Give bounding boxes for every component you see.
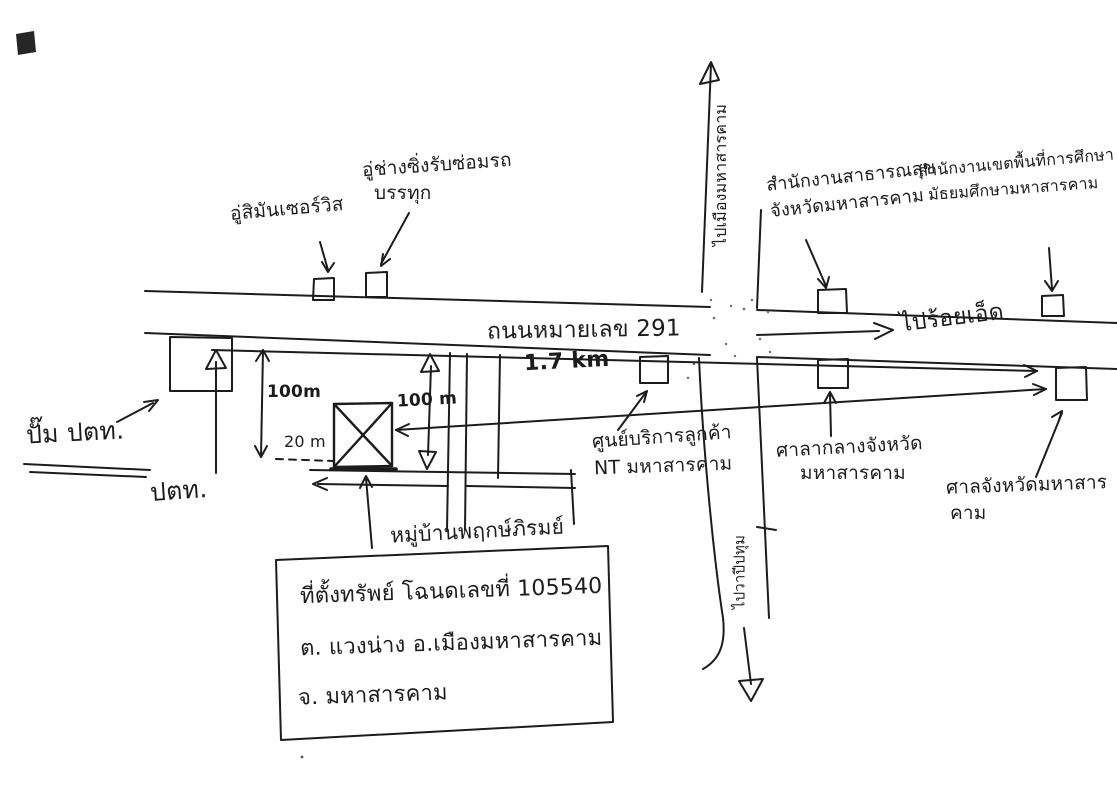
measure-100m-east: 100 m <box>397 390 458 411</box>
provincial-hall-building <box>818 359 848 388</box>
measure-20m: 20 m <box>284 434 326 451</box>
speck <box>301 756 304 759</box>
hand-drawn-location-map: อู่สิมันเซอร์วิส อู่ช่างซิ่งรับซ่อมรถ บร… <box>0 0 1117 800</box>
property-note-line3: จ. มหาสารคาม <box>298 681 449 709</box>
direction-wapi-pathum: ไปวาปีปทุม <box>733 510 753 635</box>
public-health-building <box>818 289 847 313</box>
ptt-station-building <box>170 337 232 473</box>
direction-muang-mahasarakham: ไปเมืองมหาสารคาม <box>713 85 735 265</box>
label-truck-garage-line2: บรรทุก <box>374 184 432 204</box>
measure-100m-west: 100m <box>267 384 321 402</box>
truck-garage-building <box>366 272 387 297</box>
education-office-building <box>1042 295 1064 316</box>
property-marker <box>331 403 396 469</box>
main-road-distance: 1.7 km <box>523 348 609 376</box>
dimension-100m-east <box>419 354 439 469</box>
label-provincial-court-line2: คาม <box>950 504 987 524</box>
map-canvas <box>0 0 1117 800</box>
arrow-right-roiet-icon <box>757 323 893 339</box>
label-ptt-short: ปตท. <box>149 476 208 506</box>
dimension-100m-west <box>255 350 269 457</box>
scan-artifact <box>16 31 36 55</box>
label-provincial-hall-line2: มหาสารคาม <box>800 464 906 484</box>
label-ptt-pump: ปั๊ม ปตท. <box>25 417 124 448</box>
dimension-20m-dashed <box>276 459 334 461</box>
provincial-court-building <box>1056 367 1087 400</box>
main-road-name: ถนนหมายเลข 291 <box>487 316 681 344</box>
sight-line-upper <box>212 350 1037 377</box>
side-street <box>447 353 500 530</box>
